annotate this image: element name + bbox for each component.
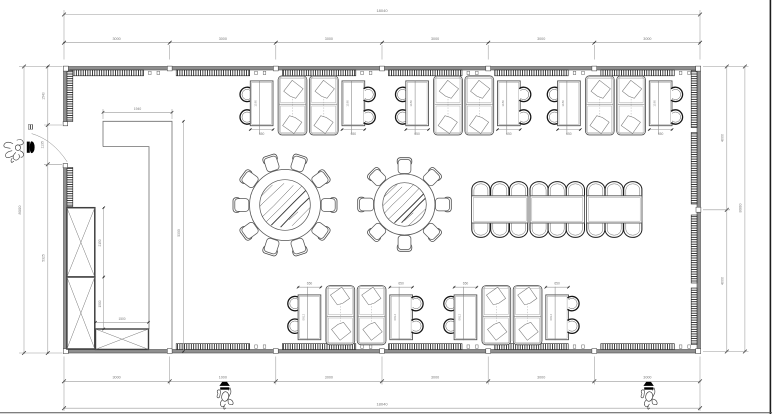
svg-text:650: 650 [414, 132, 420, 136]
svg-text:3000: 3000 [112, 37, 120, 41]
svg-text:3000: 3000 [325, 37, 333, 41]
svg-text:650: 650 [398, 282, 404, 286]
svg-text:3000: 3000 [431, 37, 439, 41]
svg-text:18040: 18040 [376, 8, 388, 13]
svg-text:1500: 1500 [118, 317, 125, 321]
svg-text:3000: 3000 [537, 376, 545, 380]
svg-text:3000: 3000 [112, 376, 120, 380]
svg-text:2150: 2150 [98, 239, 102, 246]
svg-text:3000: 3000 [219, 37, 227, 41]
svg-text:4000: 4000 [720, 134, 724, 142]
svg-text:3000: 3000 [643, 376, 651, 380]
svg-text:650: 650 [463, 282, 469, 286]
svg-text:18040: 18040 [376, 402, 388, 407]
svg-text:3000: 3000 [325, 376, 333, 380]
svg-text:1500: 1500 [98, 300, 102, 307]
svg-text:650: 650 [351, 132, 357, 136]
svg-text:650: 650 [506, 132, 512, 136]
svg-text:3000: 3000 [431, 376, 439, 380]
svg-text:3000: 3000 [643, 37, 651, 41]
svg-text:650: 650 [259, 132, 265, 136]
svg-text:3000: 3000 [537, 37, 545, 41]
svg-text:1540: 1540 [42, 92, 46, 100]
svg-text:5325: 5325 [42, 254, 46, 262]
svg-text:1000: 1000 [219, 376, 227, 380]
svg-text:8000: 8000 [17, 205, 22, 215]
svg-text:8000: 8000 [737, 203, 742, 213]
svg-text:650: 650 [658, 132, 664, 136]
svg-text:650: 650 [566, 132, 572, 136]
svg-text:1940: 1940 [134, 107, 142, 111]
svg-text:4000: 4000 [720, 277, 724, 285]
svg-text:1135: 1135 [41, 141, 45, 148]
svg-text:650: 650 [554, 282, 560, 286]
svg-text:650: 650 [307, 282, 313, 286]
svg-text:5300: 5300 [177, 229, 181, 237]
